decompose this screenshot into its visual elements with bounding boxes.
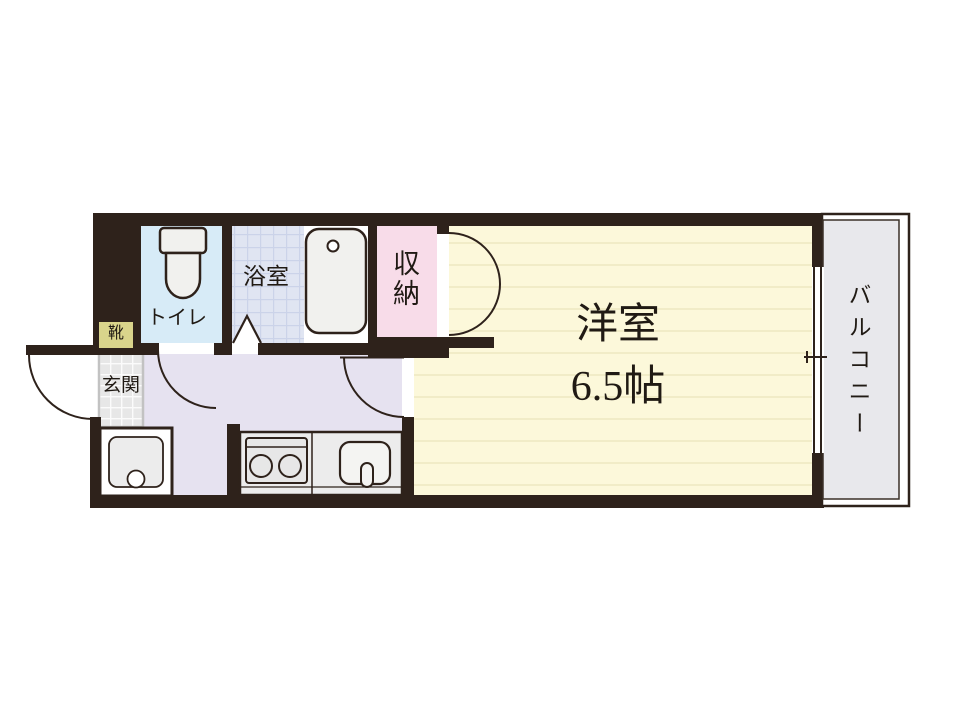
shoe-cabinet-label: 靴 xyxy=(102,325,130,343)
bathtub-icon xyxy=(306,229,366,333)
kitchen-sink-icon xyxy=(340,442,390,487)
toilet-label: トイレ xyxy=(136,307,218,329)
washing-machine-icon xyxy=(100,428,172,496)
entrance-door-swing xyxy=(29,355,93,419)
floor-plan-drawing xyxy=(0,0,960,720)
western-room-label: 洋室 6.5帖 xyxy=(498,302,738,410)
balcony-label: バルコニー xyxy=(846,283,869,443)
bathroom-label: 浴室 xyxy=(228,264,304,289)
entrance-label: 玄関 xyxy=(92,376,150,397)
closet-track xyxy=(437,232,449,337)
western-room-size: 6.5帖 xyxy=(498,364,738,410)
floor-plan: 洋室 6.5帖 浴室 トイレ 収納 玄関 靴 バルコニー xyxy=(0,0,960,720)
western-room-name: 洋室 xyxy=(498,302,738,348)
room-door-opening xyxy=(402,355,414,417)
kitchen-counter xyxy=(240,432,402,495)
stove-icon xyxy=(246,438,307,483)
toilet-icon xyxy=(160,228,206,298)
storage-label: 収納 xyxy=(390,249,417,309)
